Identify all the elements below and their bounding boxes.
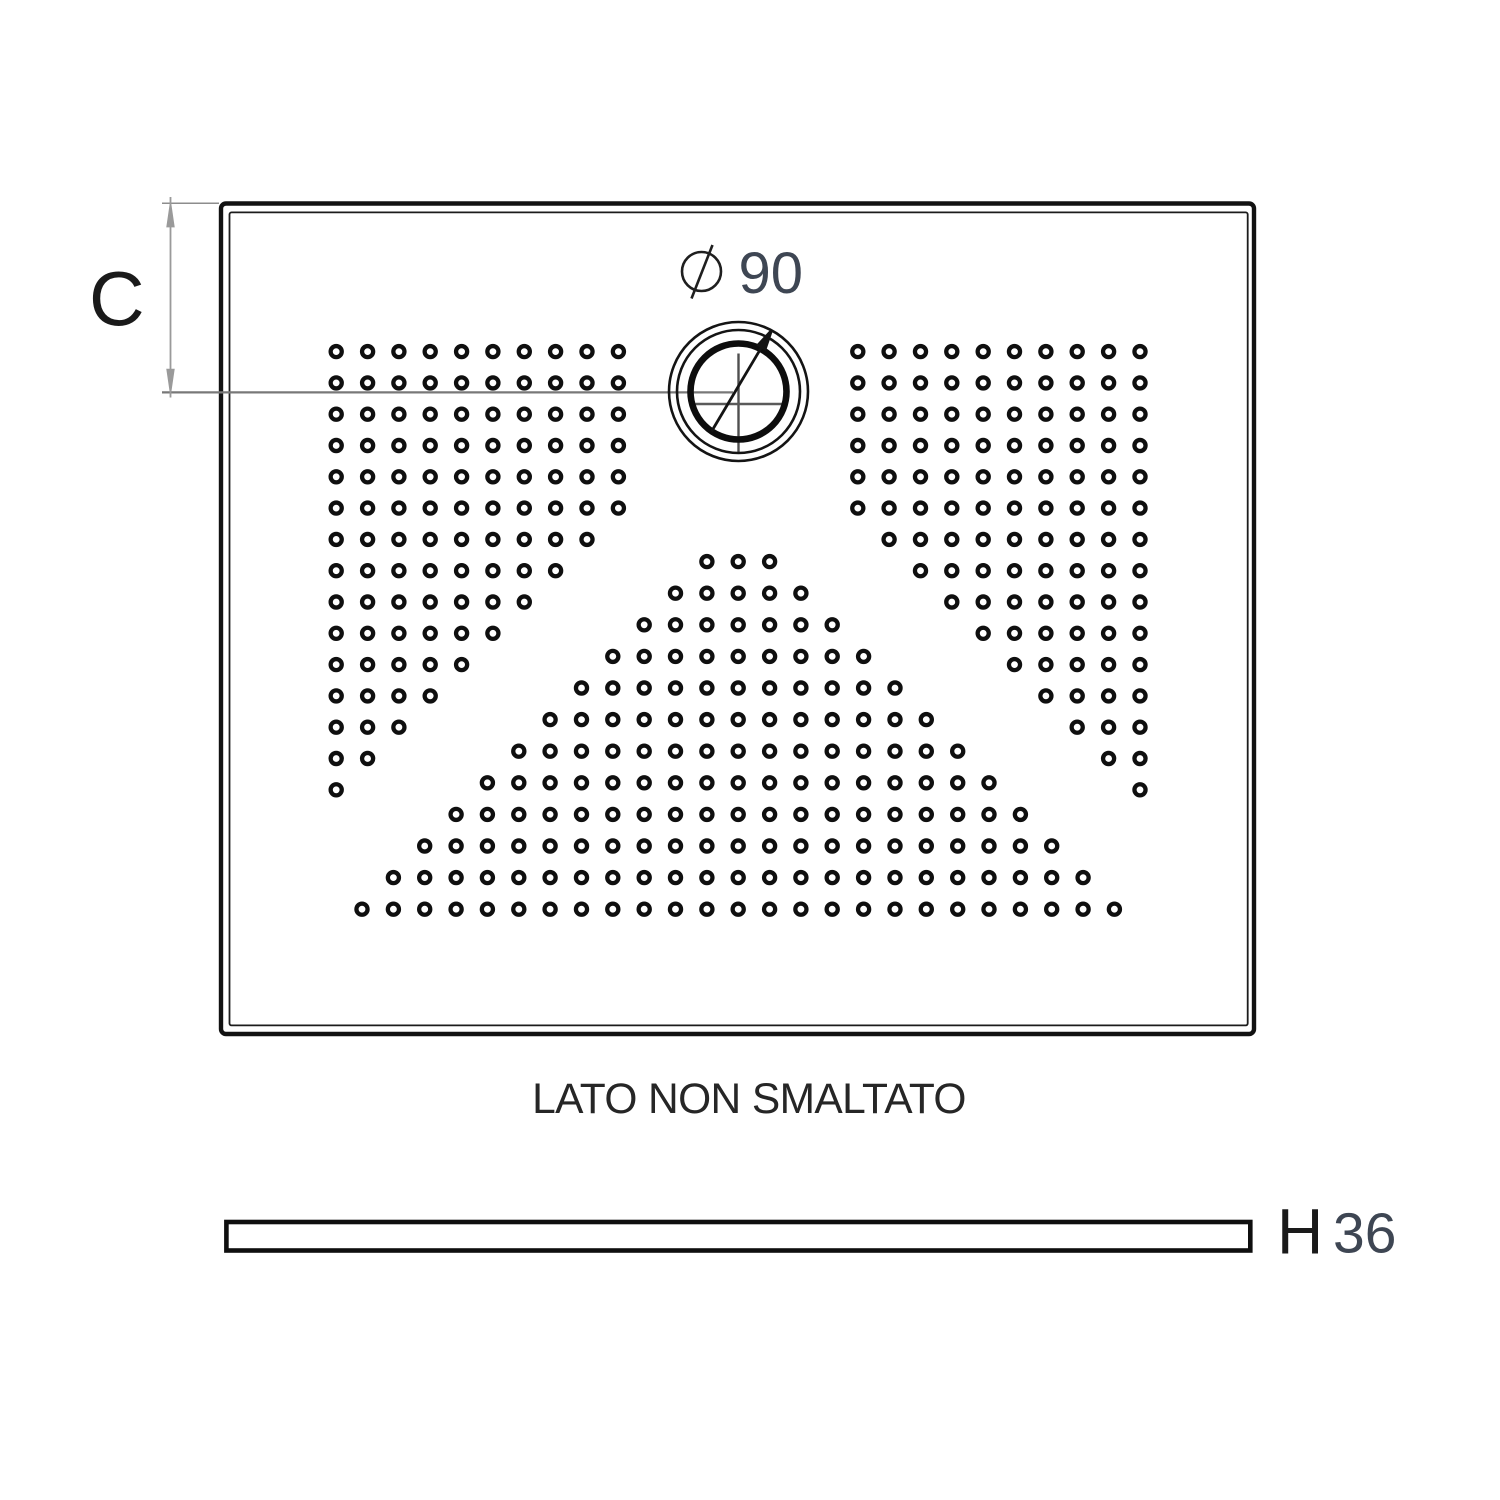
svg-text:H: H — [1277, 1196, 1323, 1268]
svg-text:90: 90 — [739, 241, 804, 306]
svg-text:LATO NON SMALTATO: LATO NON SMALTATO — [532, 1076, 966, 1123]
svg-text:C: C — [89, 257, 145, 343]
svg-text:36: 36 — [1333, 1202, 1396, 1266]
